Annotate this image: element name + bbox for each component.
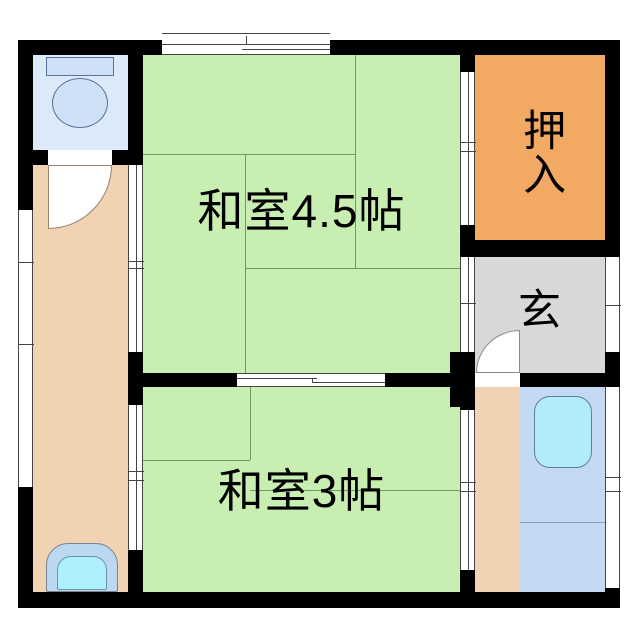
room-label-oshiire-text: 押入 bbox=[516, 97, 563, 207]
wall-toilet-bottom-left bbox=[18, 150, 48, 165]
wall-right-mid bbox=[605, 352, 620, 387]
sliding-door-corridor-upper bbox=[128, 165, 143, 352]
wall-toilet-right bbox=[128, 40, 143, 165]
wall-right-upper bbox=[605, 40, 620, 257]
wall-top-right bbox=[330, 40, 620, 55]
kitchen-sink bbox=[534, 396, 592, 468]
sliding-door-corridor-lower bbox=[128, 405, 143, 550]
entrance-door bbox=[605, 257, 620, 352]
wall-genkan-bottom bbox=[520, 373, 605, 387]
floor-plan: 和室4.5帖 和室3帖 押入 玄 bbox=[0, 0, 640, 640]
tatami-line bbox=[250, 387, 251, 460]
wall-left-upper bbox=[18, 40, 33, 210]
wall-corridor-stub-low bbox=[128, 550, 143, 592]
sliding-door-oshiire bbox=[460, 72, 475, 225]
wall-bottom bbox=[18, 592, 620, 608]
window-left bbox=[18, 210, 33, 487]
fusuma-room-divider bbox=[237, 373, 385, 387]
tatami-line bbox=[143, 460, 250, 461]
room-label-genkan: 玄 bbox=[475, 289, 605, 337]
wall-column-low-bottom bbox=[460, 570, 475, 592]
wall-room-divider-left bbox=[128, 373, 237, 387]
corridor-lower bbox=[475, 387, 520, 592]
toilet-doorway bbox=[48, 150, 112, 165]
wall-toilet-bottom-right bbox=[112, 150, 143, 165]
sliding-door-kitchen-left bbox=[460, 410, 475, 570]
tatami-line bbox=[143, 154, 355, 155]
wall-left-lower bbox=[18, 487, 33, 608]
room-label-washitsu-4-5: 和室4.5帖 bbox=[143, 187, 460, 239]
sliding-door-genkan-left bbox=[460, 257, 475, 352]
wall-column-low-top bbox=[460, 387, 475, 410]
wall-right-lower-corner bbox=[605, 588, 620, 608]
window-top bbox=[162, 33, 330, 55]
wall-oshiire-bottom bbox=[460, 240, 620, 257]
toilet-bowl bbox=[52, 78, 108, 128]
genkan-doorway bbox=[475, 373, 520, 387]
tatami-line bbox=[245, 268, 460, 269]
wash-basin-bowl bbox=[57, 556, 107, 590]
toilet-tank bbox=[46, 57, 114, 76]
wall-room-divider-right bbox=[385, 373, 450, 387]
room-label-washitsu-3: 和室3帖 bbox=[143, 467, 460, 519]
window-kitchen-right bbox=[605, 387, 620, 588]
corridor bbox=[33, 165, 128, 592]
kitchen-divider-line bbox=[520, 522, 605, 523]
wall-column-top-stub bbox=[460, 40, 475, 72]
room-label-oshiire: 押入 bbox=[475, 97, 605, 207]
